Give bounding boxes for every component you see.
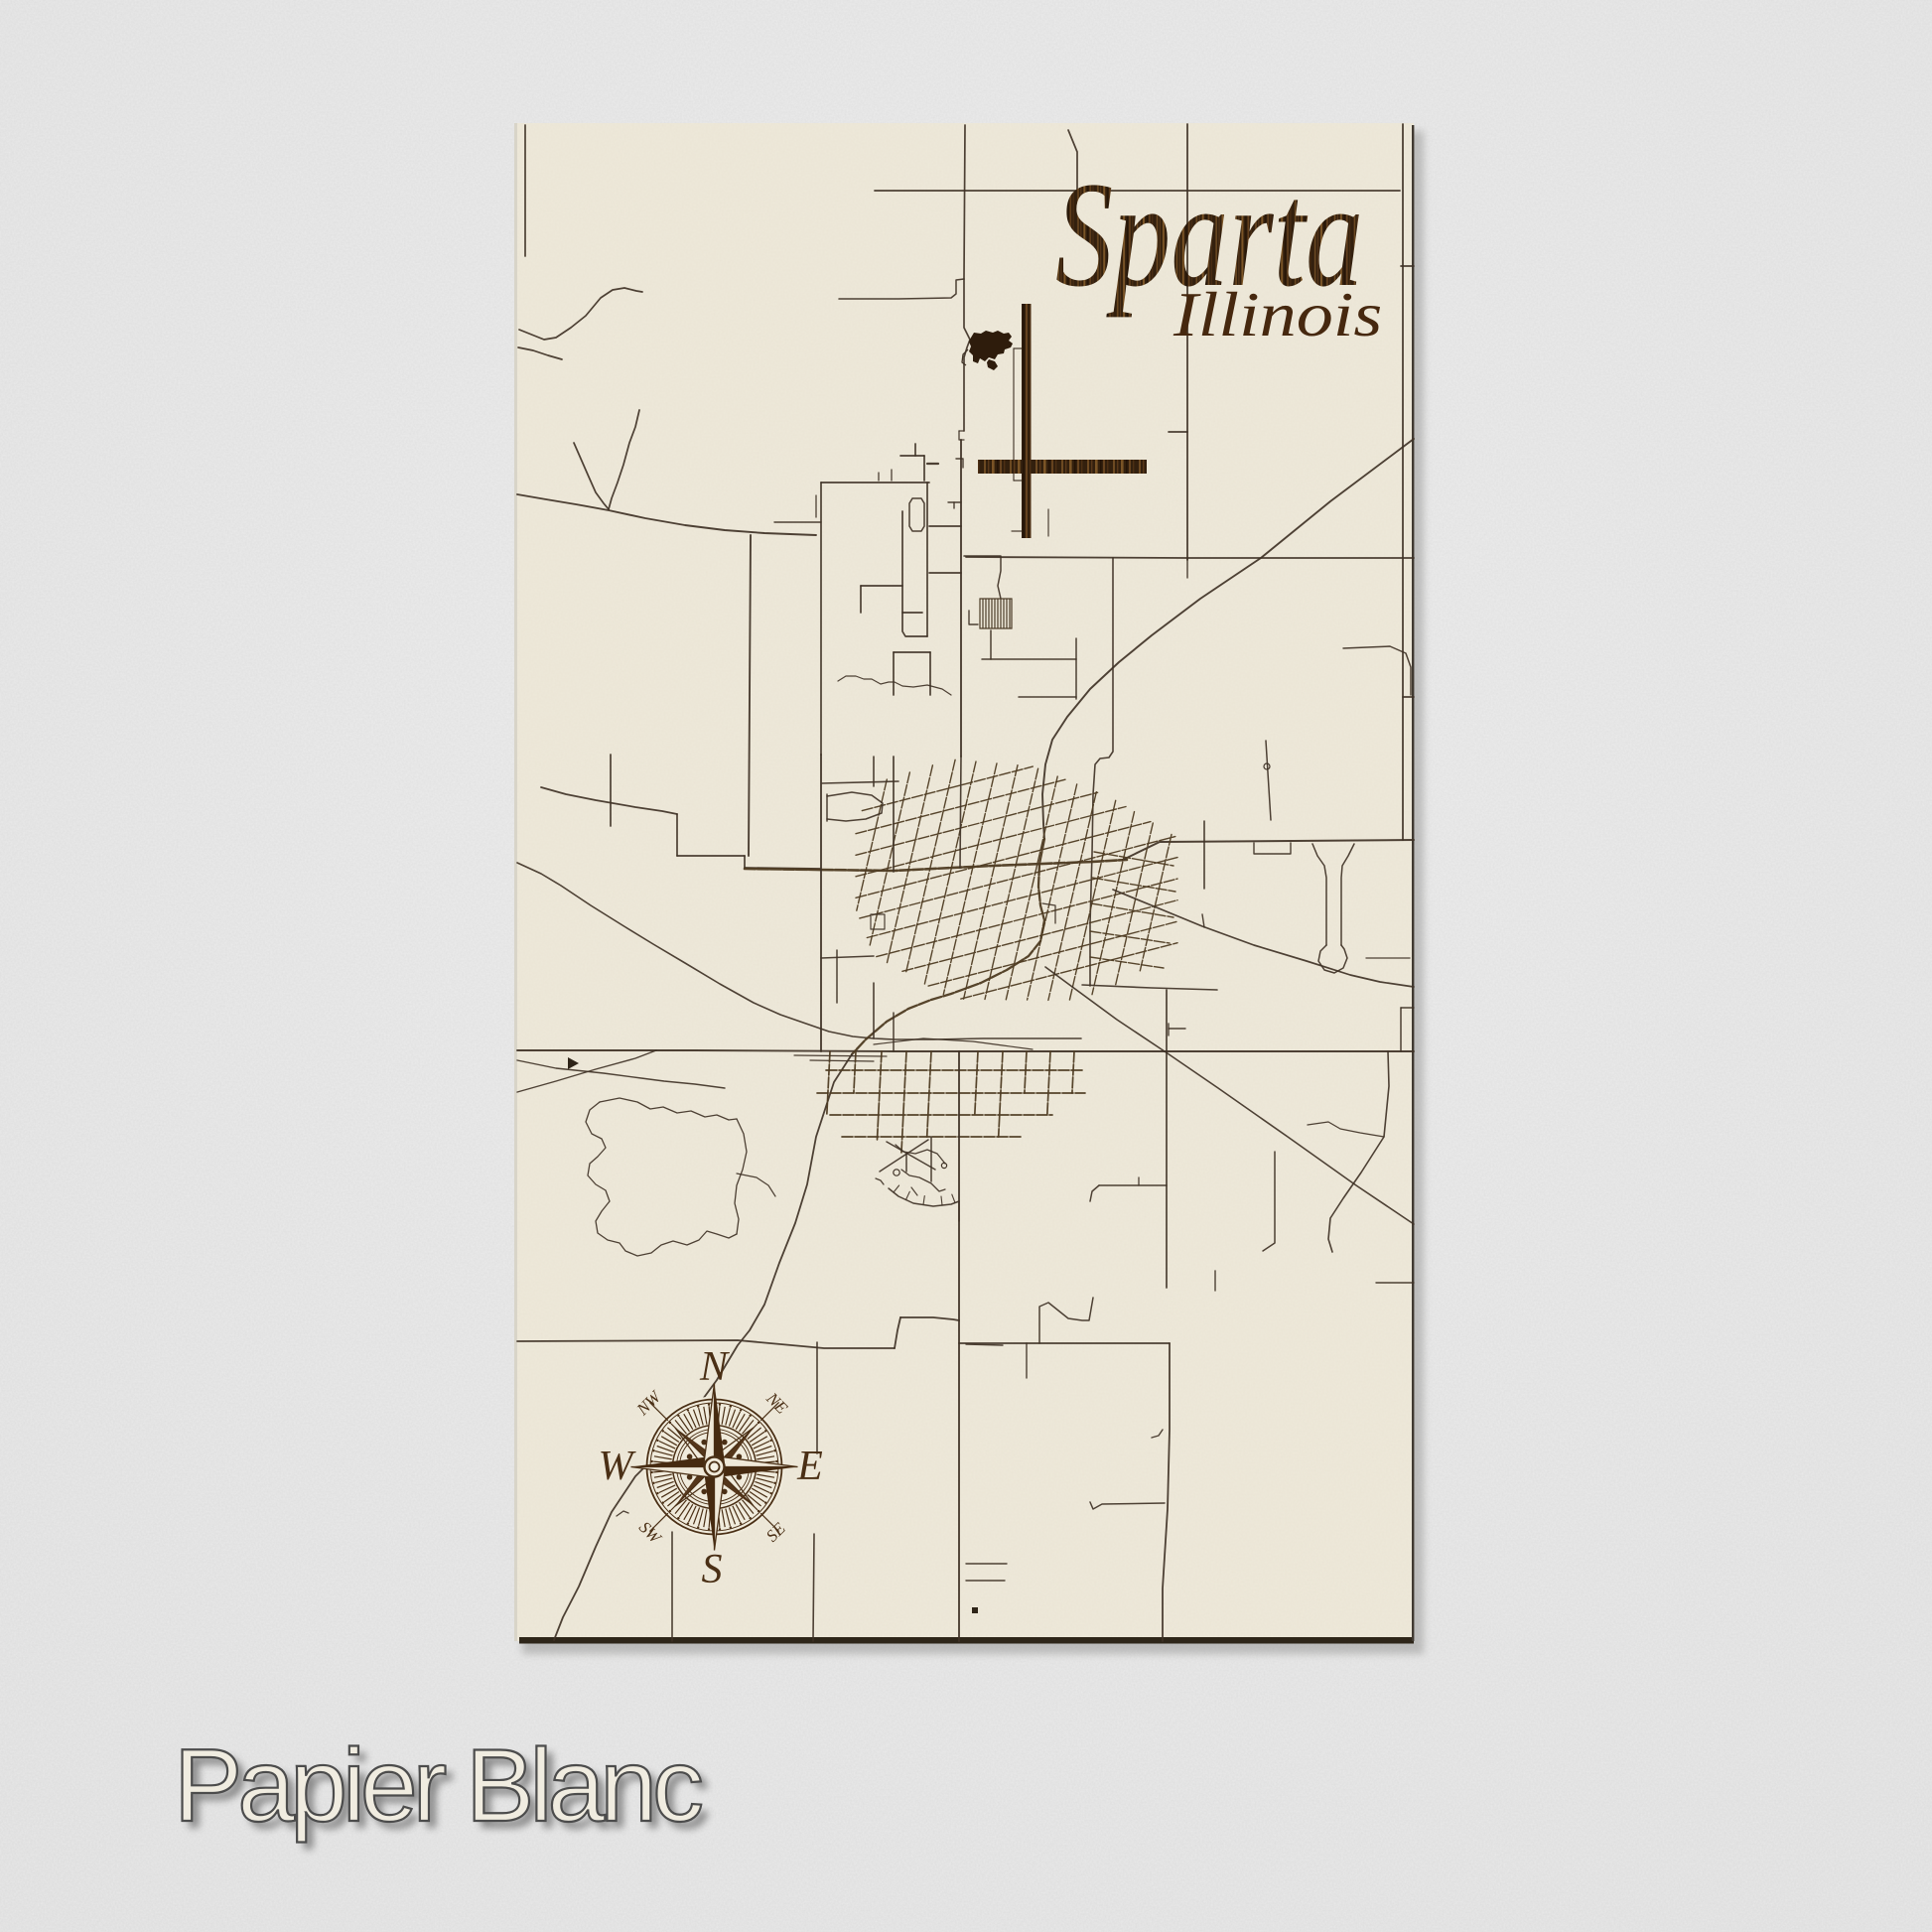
svg-text:W: W <box>599 1444 637 1489</box>
svg-text:Papier Blanc: Papier Blanc <box>174 1728 704 1844</box>
svg-text:E: E <box>796 1444 823 1489</box>
svg-text:S: S <box>702 1547 723 1592</box>
svg-text:N: N <box>699 1344 730 1390</box>
svg-text:Illinois: Illinois <box>1173 279 1382 349</box>
